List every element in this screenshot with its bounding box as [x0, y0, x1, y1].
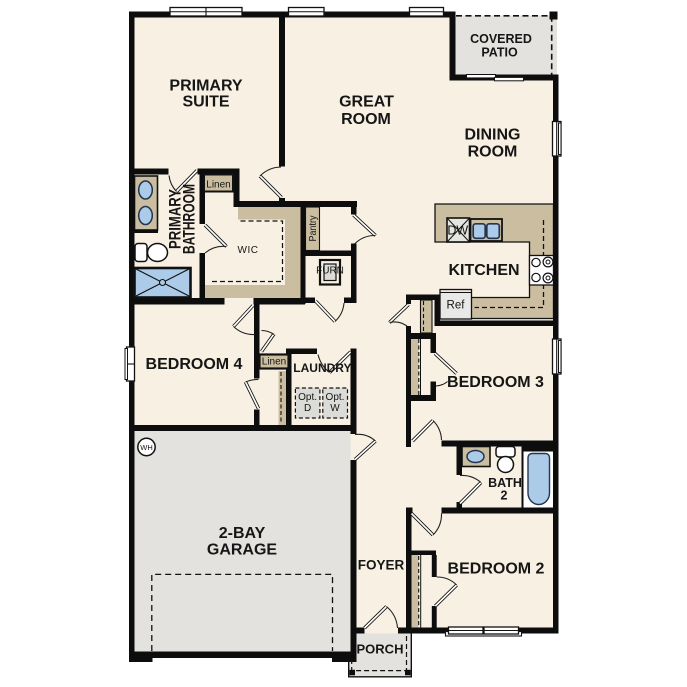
svg-text:Opt.: Opt.	[298, 392, 317, 403]
svg-text:2-BAY: 2-BAY	[219, 525, 266, 542]
svg-text:Linen: Linen	[206, 180, 230, 191]
svg-text:ROOM: ROOM	[468, 143, 518, 160]
svg-text:PORCH: PORCH	[357, 642, 404, 657]
svg-text:PATIO: PATIO	[481, 46, 518, 60]
svg-text:W: W	[330, 403, 340, 414]
svg-text:Pantry: Pantry	[307, 215, 319, 242]
svg-text:ROOM: ROOM	[341, 111, 391, 128]
svg-text:Opt.: Opt.	[326, 392, 345, 403]
svg-text:2: 2	[501, 489, 508, 503]
svg-text:KITCHEN: KITCHEN	[448, 262, 519, 279]
svg-text:DINING: DINING	[465, 127, 521, 144]
svg-text:Linen: Linen	[262, 357, 286, 368]
svg-text:FURN: FURN	[316, 266, 344, 277]
svg-text:LAUNDRY: LAUNDRY	[293, 361, 351, 375]
svg-text:SUITE: SUITE	[182, 93, 229, 110]
svg-text:Ref: Ref	[447, 300, 466, 312]
svg-text:D: D	[304, 403, 311, 414]
svg-text:COVERED: COVERED	[470, 32, 532, 46]
svg-text:BATHROOM: BATHROOM	[181, 184, 199, 254]
svg-text:GARAGE: GARAGE	[207, 542, 278, 559]
svg-text:BEDROOM 3: BEDROOM 3	[447, 374, 544, 391]
svg-text:BEDROOM 2: BEDROOM 2	[448, 561, 545, 578]
svg-text:GREAT: GREAT	[339, 94, 394, 111]
svg-text:BEDROOM 4: BEDROOM 4	[146, 356, 243, 373]
svg-text:DW: DW	[447, 224, 468, 238]
svg-text:PRIMARY: PRIMARY	[169, 78, 243, 95]
svg-text:WH: WH	[140, 443, 153, 452]
svg-text:WIC: WIC	[238, 245, 259, 256]
svg-text:FOYER: FOYER	[358, 558, 405, 573]
